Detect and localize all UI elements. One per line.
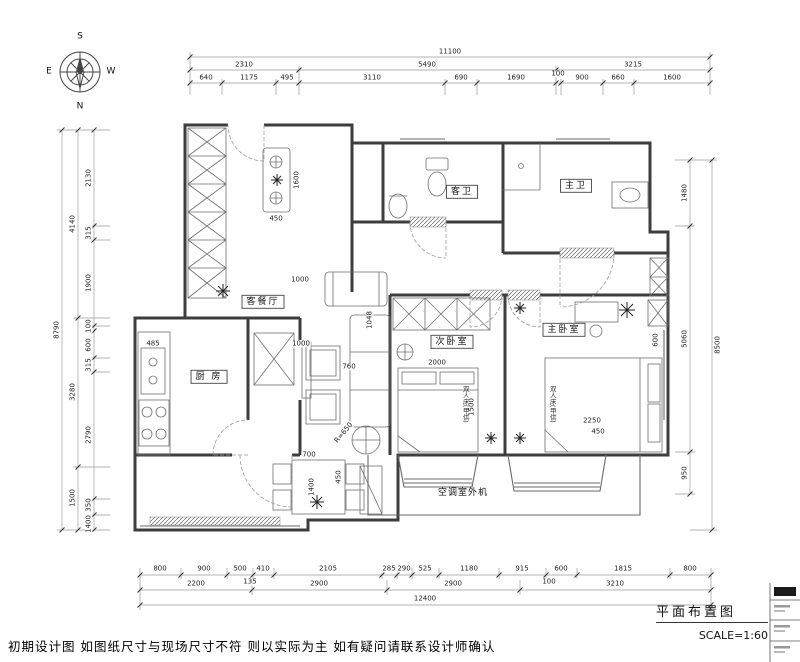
dim-bottom: 500 [232,566,247,573]
dim-bottom: 900 [196,566,211,573]
dim-bottom: 525 [417,566,432,573]
dim-right: 950 [682,465,689,480]
dim-bottom: 800 [682,566,697,573]
dim-interior: 1500 [469,397,476,417]
dim-left: 315 [86,357,93,372]
compass-west: W [107,68,116,77]
dim-interior: 1600 [294,170,301,190]
dim-interior: 485 [145,341,160,348]
dim-bottom: 800 [152,566,167,573]
dim-interior: 600 [653,332,660,347]
dim-bottom-sub: 135 [242,579,257,586]
dim-interior: 760 [341,364,356,371]
dim-bottom: 2105 [318,566,338,573]
dim-interior: 1000 [290,277,310,284]
compass-south: S [77,33,83,42]
dim-bottom: 2200 [186,581,206,588]
dim-top: 640 [198,75,213,82]
dim-right: 1480 [682,183,689,203]
compass-north: N [77,103,84,112]
dim-top: 3110 [362,75,382,82]
dim-bottom: 1815 [613,566,633,573]
dim-top: 1175 [239,75,259,82]
room-label-living: 客餐厅 [241,295,284,309]
dim-top: 660 [610,75,625,82]
dim-left: 1400 [86,514,93,534]
dim-bottom: 290 [396,566,411,573]
dim-top: 900 [574,75,589,82]
dim-bottom: 410 [255,566,270,573]
dim-top: 5490 [417,62,437,69]
dim-top: 1600 [662,75,682,82]
dim-left: 1500 [70,488,77,508]
dim-interior: 1000 [291,341,311,348]
room-label-ac-unit: 空调室外机 [434,487,492,499]
drawing-scale: SCALE=1:60 [656,630,768,641]
dim-interior: 450 [590,429,605,436]
dim-interior: 2250 [582,418,602,425]
bed1-annotation: 双人床(甲供) [549,385,556,423]
dim-bottom: 1180 [459,566,479,573]
dim-interior: 1048 [367,310,374,330]
room-label-kitchen: 厨 房 [191,370,228,384]
room-label-master-bath: 主卫 [560,179,592,193]
dim-top-overall: 11100 [438,49,462,56]
door-swings [213,125,614,507]
dim-left-overall: 8790 [54,320,61,340]
dim-bottom: 600 [553,566,568,573]
disclaimer-note: 初期设计图 如图纸尺寸与现场尺寸不符 则以实际为主 如有疑问请联系设计师确认 [8,636,495,655]
compass-rose [60,52,100,92]
dim-left: 3280 [70,382,77,402]
dim-top: 2310 [234,62,254,69]
room-label-guest-bath: 客卫 [446,185,478,199]
dim-interior: 700 [301,452,316,459]
room-label-second-bedroom: 次卧室 [430,335,473,349]
dim-bottom-sub: 100 [541,579,556,586]
dim-interior: 1400 [309,477,316,497]
dim-bottom: 3210 [605,581,625,588]
dim-bottom: 285 [381,566,396,573]
room-label-master-bedroom: 主卧室 [542,323,585,337]
dim-left: 2130 [86,168,93,188]
dim-left: 315 [86,225,93,240]
dim-left: 350 [86,497,93,512]
dim-interior: 450 [336,469,343,484]
dim-interior: 2000 [427,360,447,367]
dim-right-overall: 8500 [715,335,722,355]
dim-left: 4140 [70,214,77,234]
dim-bottom: 915 [514,566,529,573]
dim-right: 5060 [682,329,689,349]
dim-interior: 450 [268,216,283,223]
dim-top: 690 [453,75,468,82]
dim-left: 600 [86,337,93,352]
dim-left: 1900 [86,273,93,293]
title-block [770,583,800,662]
dim-left: 100 [86,318,93,333]
dim-bottom-overall: 12400 [413,596,437,603]
floor-plan-canvas: S E W N 客餐厅 厨 房 次卧室 主卧室 客卫 主卫 空调室外机 双人床(… [0,0,800,662]
dim-top: 1690 [506,75,526,82]
drawing-title: 平面布置图 [656,606,768,623]
dim-left: 2790 [86,425,93,445]
dim-bottom: 2900 [443,581,463,588]
dim-bottom: 2900 [309,581,329,588]
dim-top: 495 [279,75,294,82]
dim-top: 3215 [623,62,643,69]
compass-east: E [46,68,52,77]
dim-top: 100 [550,71,565,78]
